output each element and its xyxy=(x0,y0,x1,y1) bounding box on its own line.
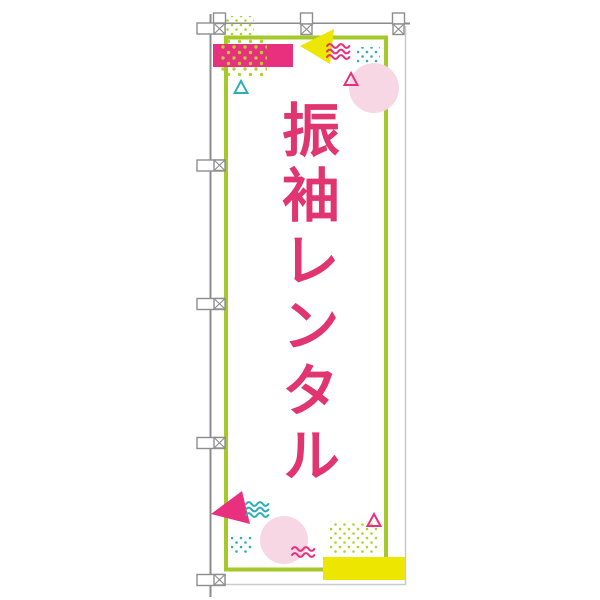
stitch-mark-icon xyxy=(214,299,225,310)
stitch-mark-icon xyxy=(214,438,225,449)
dots-grid-teal-bottom-icon xyxy=(231,536,253,553)
dots-grid-teal-icon xyxy=(357,47,380,64)
accent-bar-yellow xyxy=(323,557,405,580)
dots-grid-lime-icon xyxy=(219,38,267,76)
product-image-nobori-banner: 振袖レンタル xyxy=(0,0,600,600)
stitch-mark-icon xyxy=(214,160,225,171)
tab-loop-top-right xyxy=(393,13,405,24)
banner-title-text: 振袖レンタル xyxy=(274,100,338,500)
stitch-mark-icon xyxy=(301,24,312,35)
circle-light-pink xyxy=(349,63,399,113)
stitch-mark-icon xyxy=(393,24,404,35)
stitch-mark-icon xyxy=(214,24,225,35)
stitch-mark-icon xyxy=(214,575,225,586)
dots-grid-lime-small-icon xyxy=(222,16,254,35)
tab-loop-top-middle xyxy=(301,13,313,24)
